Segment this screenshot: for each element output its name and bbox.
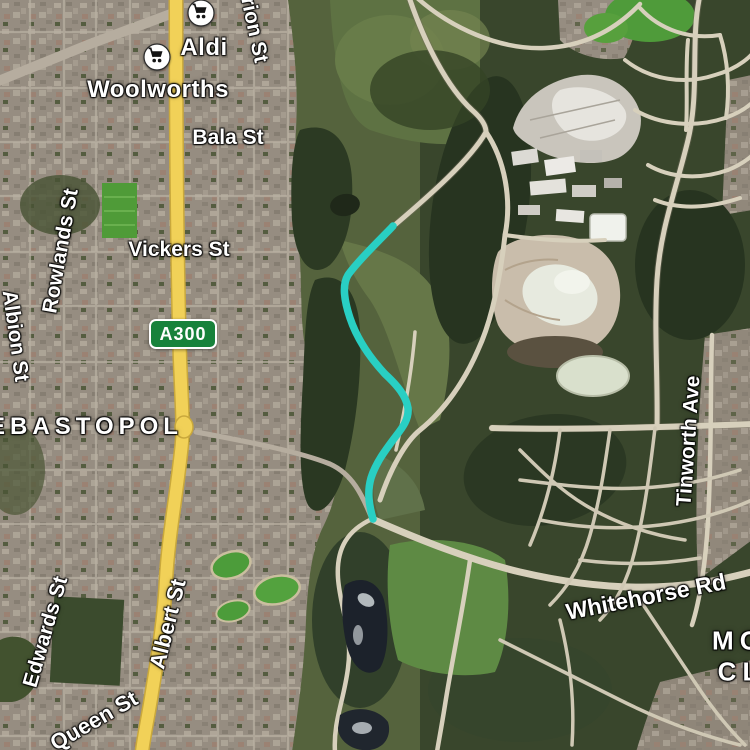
- shopping-cart-icon[interactable]: [143, 43, 171, 71]
- poi-label-woolworths[interactable]: Woolworths: [87, 76, 229, 104]
- satellite-imagery: [0, 0, 750, 750]
- shopping-cart-icon[interactable]: [187, 0, 215, 27]
- poi-label-aldi[interactable]: Aldi: [180, 34, 227, 62]
- map-canvas[interactable]: Aldi Woolworths Bala St rion St Vickers …: [0, 0, 750, 750]
